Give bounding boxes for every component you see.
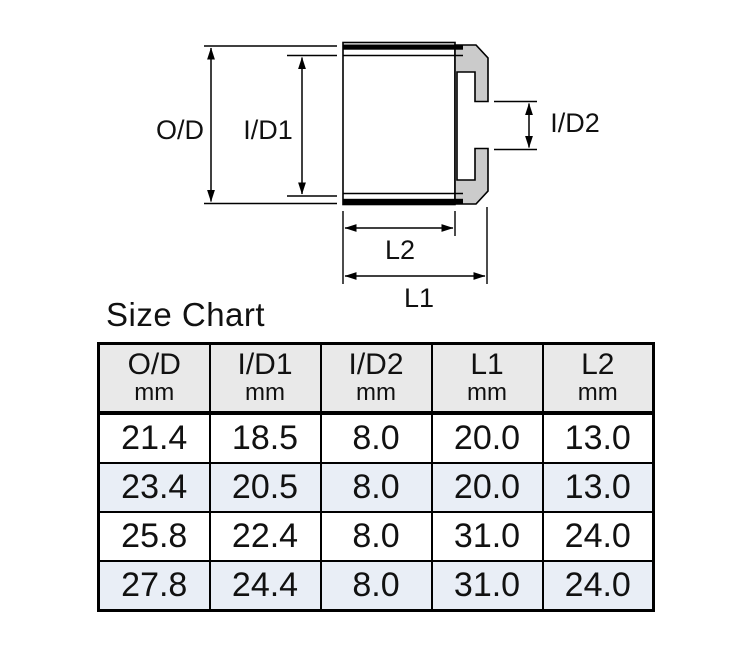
column-header-id2: I/D2 mm <box>321 344 432 414</box>
column-unit: mm <box>100 381 209 405</box>
table-cell: 27.8 <box>99 561 210 611</box>
id2-label: I/D2 <box>550 108 600 138</box>
column-unit: mm <box>433 381 542 405</box>
l2-label: L2 <box>385 235 415 265</box>
table-cell: 24.0 <box>543 561 654 611</box>
column-label: L1 <box>433 349 542 381</box>
table-cell: 24.4 <box>210 561 321 611</box>
table-row: 27.8 24.4 8.0 31.0 24.0 <box>99 561 654 611</box>
column-label: L2 <box>544 349 653 381</box>
column-header-od: O/D mm <box>99 344 210 414</box>
l1-label: L1 <box>404 283 434 313</box>
table-cell: 8.0 <box>321 512 432 561</box>
size-chart-table: O/D mm I/D1 mm I/D2 mm L1 mm L2 mm <box>97 342 655 612</box>
table-cell: 20.0 <box>432 413 543 463</box>
fitting-body <box>343 43 455 205</box>
table-cell: 23.4 <box>99 463 210 512</box>
column-label: O/D <box>100 349 209 381</box>
column-label: I/D2 <box>322 349 431 381</box>
table-row: 25.8 22.4 8.0 31.0 24.0 <box>99 512 654 561</box>
table-cell: 25.8 <box>99 512 210 561</box>
fitting-bottom-band <box>343 199 463 204</box>
column-header-id1: I/D1 mm <box>210 344 321 414</box>
column-header-l2: L2 mm <box>543 344 654 414</box>
column-header-l1: L1 mm <box>432 344 543 414</box>
table-row: 21.4 18.5 8.0 20.0 13.0 <box>99 413 654 463</box>
column-label: I/D1 <box>211 349 320 381</box>
size-chart-title: Size Chart <box>106 296 265 334</box>
column-unit: mm <box>544 381 653 405</box>
size-chart-body: 21.4 18.5 8.0 20.0 13.0 23.4 20.5 8.0 20… <box>99 413 654 611</box>
od-label: O/D <box>156 115 204 145</box>
table-cell: 22.4 <box>210 512 321 561</box>
table-row: 23.4 20.5 8.0 20.0 13.0 <box>99 463 654 512</box>
column-unit: mm <box>322 381 431 405</box>
fitting-top-band <box>343 45 463 50</box>
table-cell: 8.0 <box>321 561 432 611</box>
table-cell: 20.5 <box>210 463 321 512</box>
id1-label: I/D1 <box>243 115 293 145</box>
table-cell: 31.0 <box>432 561 543 611</box>
table-cell: 21.4 <box>99 413 210 463</box>
table-cell: 13.0 <box>543 463 654 512</box>
table-cell: 24.0 <box>543 512 654 561</box>
table-cell: 31.0 <box>432 512 543 561</box>
table-cell: 8.0 <box>321 413 432 463</box>
size-chart-header: O/D mm I/D1 mm I/D2 mm L1 mm L2 mm <box>99 344 654 414</box>
table-cell: 18.5 <box>210 413 321 463</box>
table-cell: 13.0 <box>543 413 654 463</box>
table-cell: 20.0 <box>432 463 543 512</box>
fitting-cap-section <box>455 45 488 204</box>
fitting-diagram: O/D I/D1 I/D2 L2 L1 <box>0 0 753 330</box>
table-cell: 8.0 <box>321 463 432 512</box>
column-unit: mm <box>211 381 320 405</box>
page: O/D I/D1 I/D2 L2 L1 Size Chart O/D mm <box>0 0 753 666</box>
